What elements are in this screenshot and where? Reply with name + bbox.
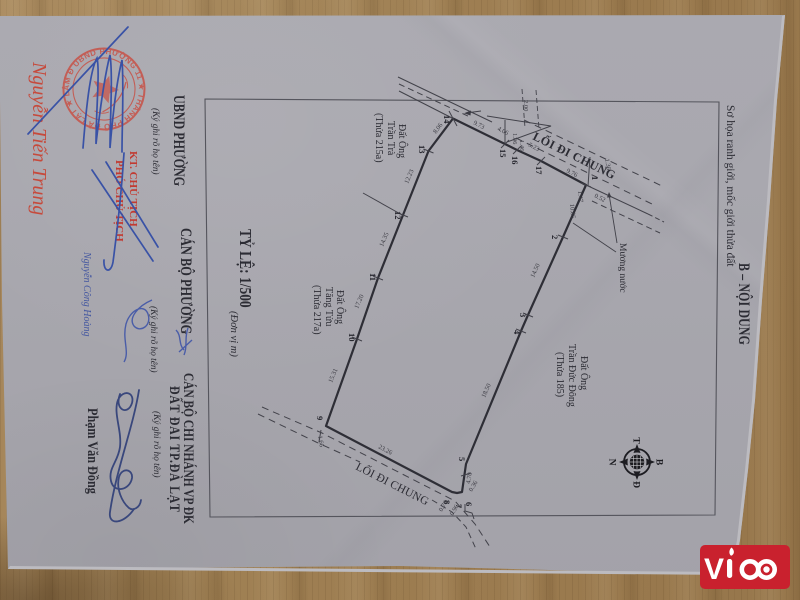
svg-text:16: 16 — [510, 156, 520, 165]
svg-text:2.00: 2.00 — [522, 100, 529, 111]
svg-text:17: 17 — [534, 166, 544, 175]
svg-text:12.23: 12.23 — [403, 169, 415, 185]
svg-text:9: 9 — [315, 416, 325, 420]
svg-text:(Thửa 215a): (Thửa 215a) — [373, 113, 384, 163]
svg-text:18.50: 18.50 — [480, 383, 492, 399]
svg-text:15.31: 15.31 — [327, 368, 339, 384]
svg-text:13: 13 — [417, 145, 427, 154]
svg-text:17.20: 17.20 — [353, 294, 365, 310]
svg-text:Trần Đức Đông: Trần Đức Đông — [566, 344, 577, 407]
svg-text:12: 12 — [393, 211, 403, 220]
svg-text:Nguyễn Công Hoàng: Nguyễn Công Hoàng — [81, 251, 92, 336]
svg-text:CÁN BỘ PHƯỜNG: CÁN BỘ PHƯỜNG — [177, 228, 196, 334]
svg-text:Trần Trà: Trần Trà — [385, 121, 396, 156]
svg-text:Nguyễn Tiến Trung: Nguyễn Tiến Trung — [28, 61, 50, 215]
svg-text:LỐI ĐI CHUNG: LỐI ĐI CHUNG — [354, 458, 432, 508]
svg-text:T: T — [631, 437, 641, 444]
svg-text:B: B — [654, 459, 664, 466]
svg-text:(Ký ghi rõ họ tên): (Ký ghi rõ họ tên) — [148, 306, 159, 373]
svg-text:1.66: 1.66 — [316, 435, 325, 448]
svg-text:(Ký ghi rõ họ tên): (Ký ghi rõ họ tên) — [150, 108, 161, 175]
svg-text:Sơ họa ranh giới, mốc giới thử: Sơ họa ranh giới, mốc giới thửa đất — [724, 105, 736, 267]
svg-text:2: 2 — [550, 235, 560, 239]
svg-text:V: V — [704, 553, 724, 586]
svg-text:14.35: 14.35 — [378, 232, 390, 248]
svg-text:B – NỘI DUNG: B – NỘI DUNG — [736, 263, 754, 345]
svg-text:3: 3 — [518, 313, 528, 317]
svg-text:10.85: 10.85 — [568, 204, 576, 219]
svg-text:TỶ LỆ: 1/500: TỶ LỆ: 1/500 — [236, 229, 255, 308]
svg-text:1.06: 1.06 — [511, 133, 518, 145]
svg-text:(Đơn vị m): (Đơn vị m) — [228, 311, 239, 357]
svg-text:6: 6 — [464, 502, 474, 506]
svg-text:11: 11 — [368, 273, 378, 281]
svg-text:Đất Ông: Đất Ông — [396, 124, 408, 158]
svg-text:Đất Ông: Đất Ông — [578, 356, 590, 390]
svg-text:1.47: 1.47 — [576, 191, 584, 204]
svg-text:Mương nước: Mương nước — [617, 243, 627, 293]
svg-text:10: 10 — [347, 333, 357, 342]
svg-text:14: 14 — [442, 115, 452, 124]
svg-text:14.50: 14.50 — [529, 263, 541, 279]
svg-text:UBND PHƯỜNG: UBND PHƯỜNG — [170, 95, 189, 186]
svg-text:(Thửa 185): (Thửa 185) — [554, 352, 565, 397]
svg-text:(Ký ghi rõ họ tên): (Ký ghi rõ họ tên) — [151, 411, 162, 478]
svg-text:ĐẤT ĐAI TP.ĐÀ LẠT: ĐẤT ĐAI TP.ĐÀ LẠT — [167, 386, 184, 513]
svg-text:N: N — [607, 459, 617, 466]
svg-text:15: 15 — [498, 149, 508, 158]
svg-text:Đất Ông: Đất Ông — [334, 290, 346, 324]
svg-text:Đ: Đ — [631, 481, 641, 488]
svg-text:KT. CHỦ TỊCH: KT. CHỦ TỊCH — [127, 151, 139, 227]
svg-text:1.46: 1.46 — [518, 140, 525, 152]
svg-text:(Thửa 217a): (Thửa 217a) — [311, 285, 322, 335]
svg-text:Phạm Văn Đồng: Phạm Văn Đồng — [85, 408, 101, 494]
svg-text:1: 1 — [590, 176, 600, 180]
svg-text:4.06: 4.06 — [496, 126, 510, 138]
svg-text:Tăng Tửu: Tăng Tửu — [323, 287, 334, 326]
svg-text:5: 5 — [457, 457, 467, 461]
